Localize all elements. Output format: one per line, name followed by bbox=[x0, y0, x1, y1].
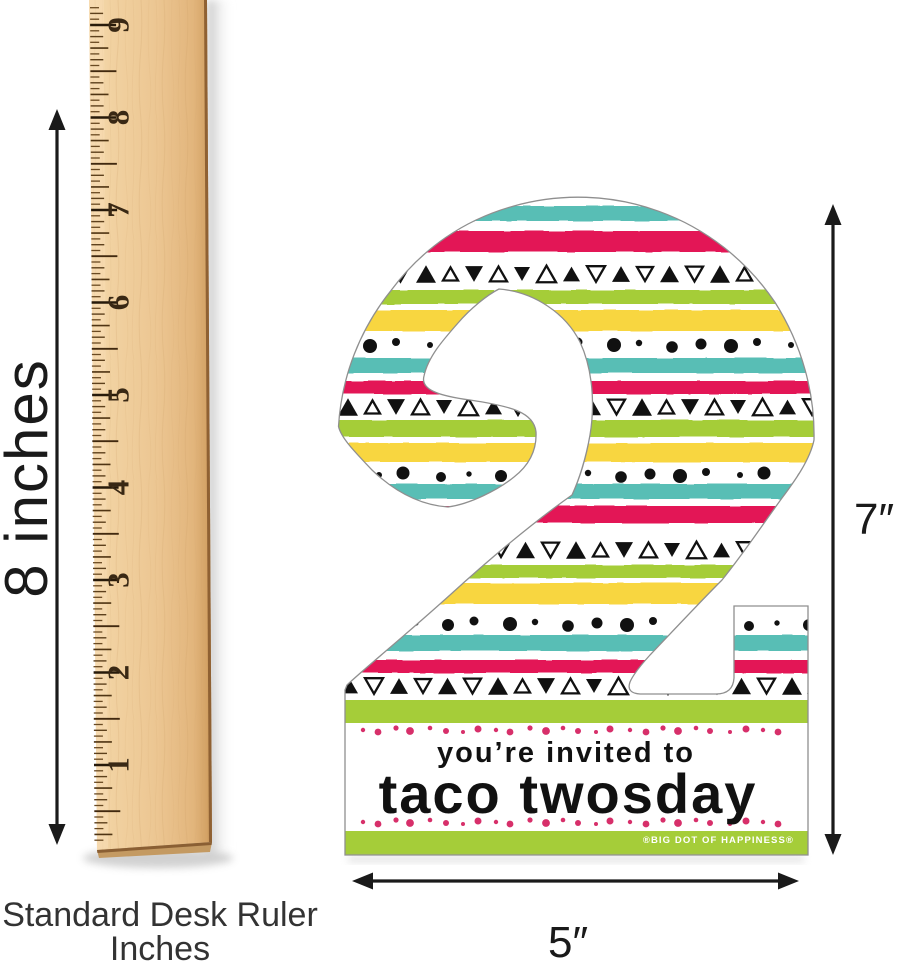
svg-text:5″: 5″ bbox=[548, 918, 588, 965]
svg-text:5: 5 bbox=[101, 387, 136, 403]
svg-text:taco twosday: taco twosday bbox=[379, 762, 758, 825]
svg-text:®BIG DOT OF HAPPINESS®: ®BIG DOT OF HAPPINESS® bbox=[643, 835, 794, 846]
svg-text:1: 1 bbox=[101, 757, 136, 773]
svg-text:7: 7 bbox=[101, 202, 136, 218]
svg-text:7″: 7″ bbox=[854, 495, 894, 544]
svg-text:Inches: Inches bbox=[110, 930, 210, 965]
svg-text:6: 6 bbox=[101, 295, 136, 311]
svg-text:8 inches: 8 inches bbox=[0, 358, 60, 597]
svg-text:Standard Desk Ruler: Standard Desk Ruler bbox=[2, 896, 318, 934]
svg-text:3: 3 bbox=[101, 572, 136, 588]
svg-text:8: 8 bbox=[101, 110, 136, 126]
svg-text:9: 9 bbox=[101, 17, 136, 33]
svg-text:2: 2 bbox=[101, 665, 136, 681]
svg-text:4: 4 bbox=[101, 480, 136, 496]
